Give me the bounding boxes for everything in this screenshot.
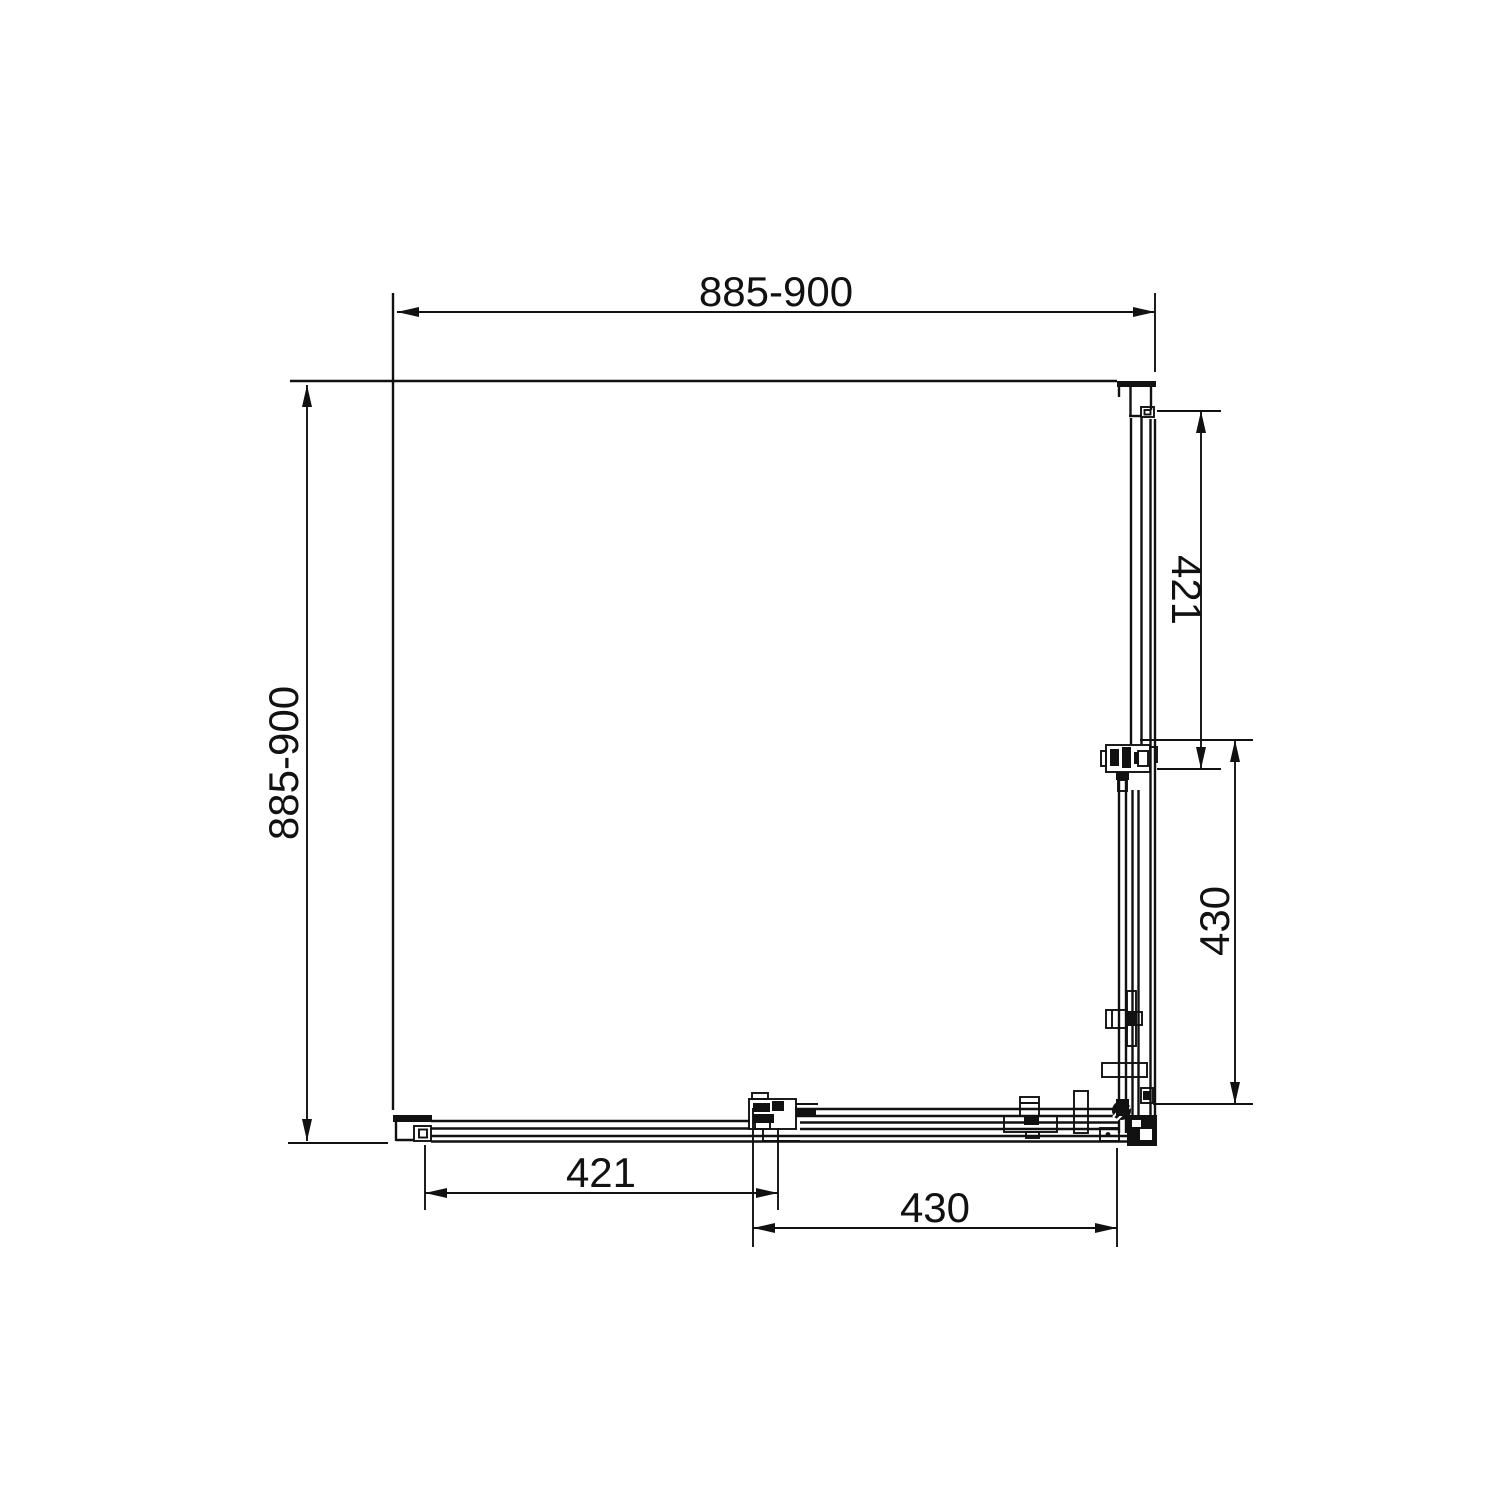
dim-right-fixed-label: 421 — [1163, 555, 1210, 625]
dim-bottom-door-label: 430 — [900, 1184, 970, 1231]
wall-profile-bottom-left — [393, 1115, 432, 1141]
dim-top-width-label: 885-900 — [699, 268, 853, 315]
dim-right-door: 430 — [1140, 740, 1253, 1104]
drawing-canvas: 885-900 885-900 421 430 421 — [0, 0, 1500, 1500]
dim-left-depth: 885-900 — [260, 385, 388, 1143]
right-glass-clamp-upper — [1106, 991, 1142, 1046]
right-glass-clamp-lower — [1102, 1063, 1147, 1077]
dim-bottom-fixed-label: 421 — [566, 1149, 636, 1196]
bottom-glass-clamp-left — [1004, 1097, 1057, 1138]
dim-top-width: 885-900 — [397, 268, 1155, 372]
wall-lines — [290, 293, 1117, 1110]
wall-profile-top-right — [1117, 381, 1156, 417]
right-door-bracket — [1101, 745, 1157, 791]
dim-left-depth-label: 885-900 — [260, 686, 307, 840]
dim-right-fixed: 421 — [1157, 411, 1221, 769]
bottom-panel — [431, 1109, 1145, 1142]
bottom-glass-clamp-right — [1074, 1091, 1088, 1133]
dim-right-door-label: 430 — [1191, 886, 1238, 956]
shower-enclosure-plan: 885-900 885-900 421 430 421 — [0, 0, 1500, 1500]
